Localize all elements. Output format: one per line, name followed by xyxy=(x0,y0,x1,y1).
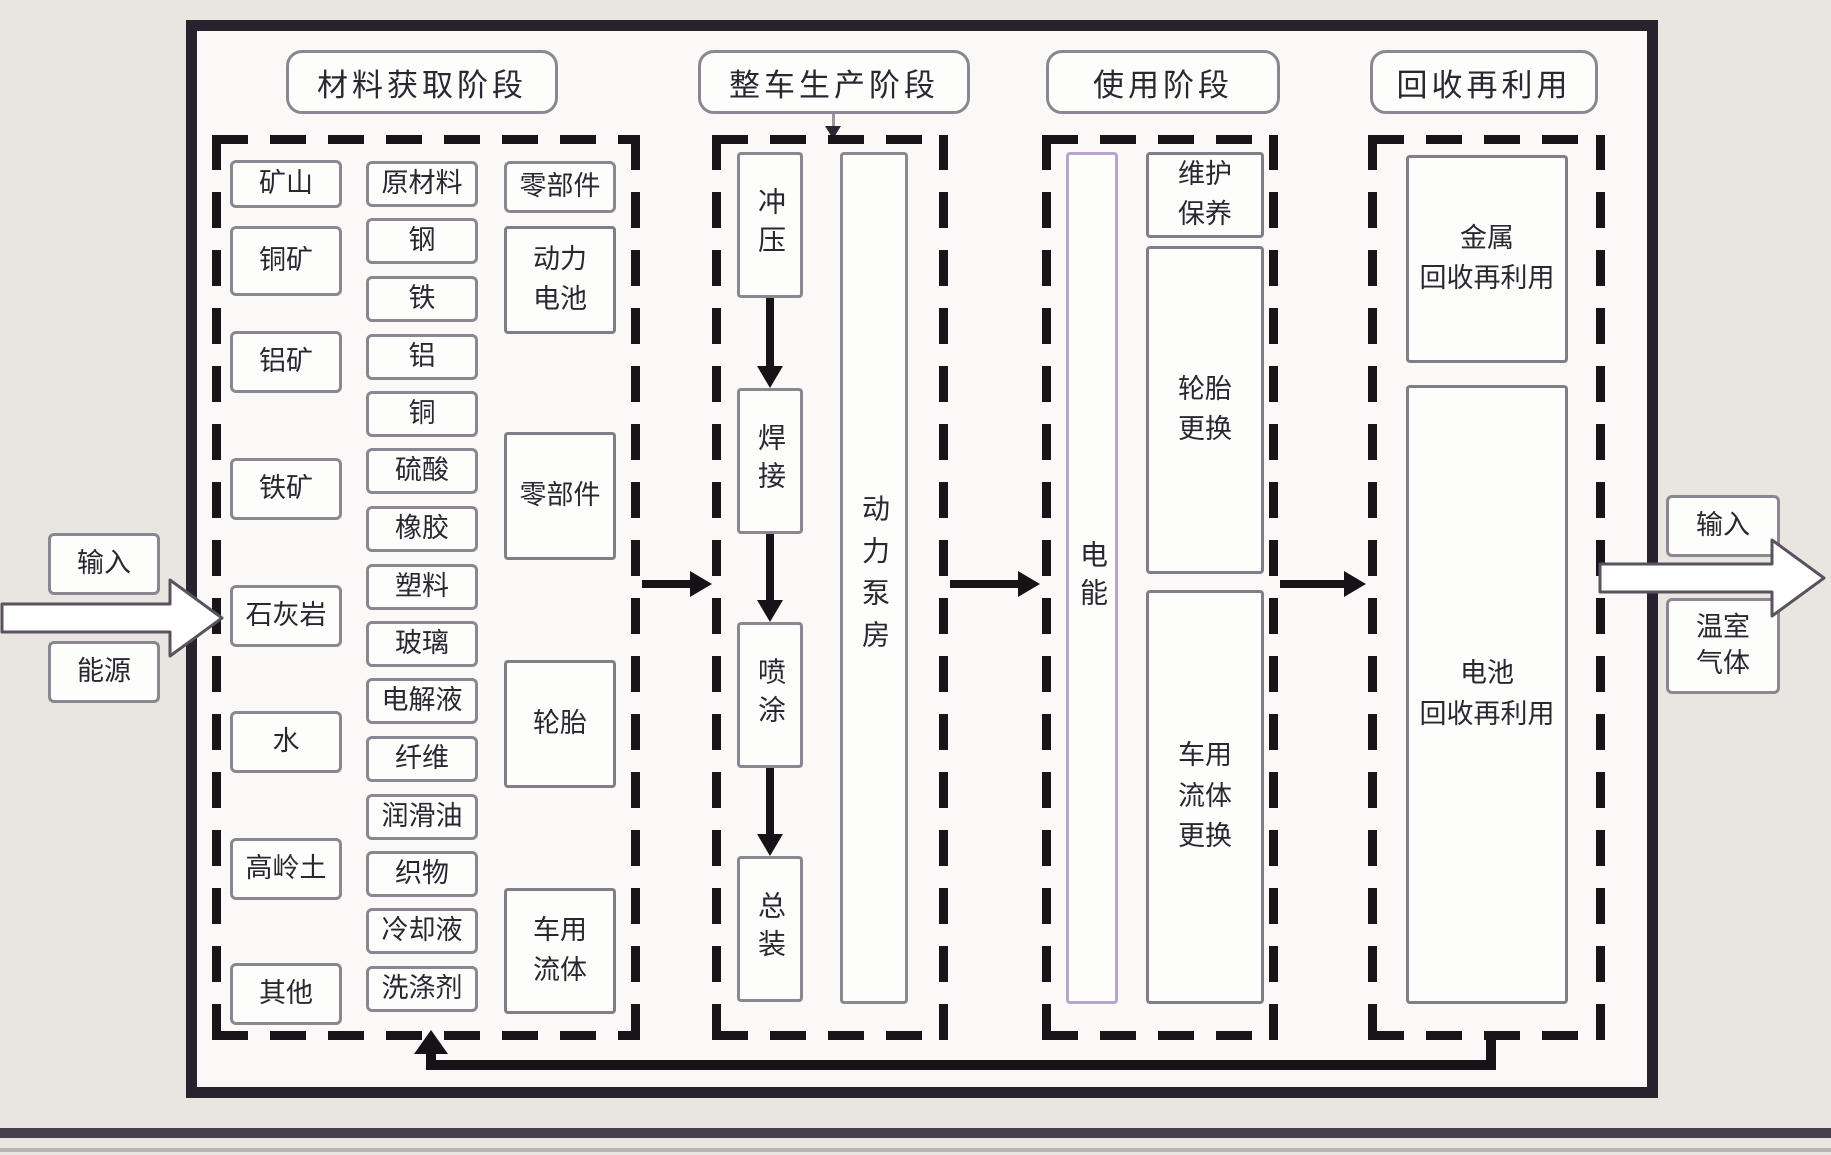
stage-title-recycling: 回收再利用 xyxy=(1370,50,1598,114)
metal-recycling-box: 金属 回收再利用 xyxy=(1406,155,1568,363)
process-arrow-icon-1 xyxy=(757,366,783,388)
stage-arrow-line-1 xyxy=(642,580,690,588)
material-iron: 铁 xyxy=(366,276,478,322)
activity-fluid-replacement: 车用 流体 更换 xyxy=(1146,590,1264,1004)
input-flow-arrow xyxy=(0,575,225,665)
power-pump-room-box: 动力泵房 xyxy=(840,152,908,1004)
material-electrolyte: 电解液 xyxy=(366,678,478,724)
electric-energy-box: 电能 xyxy=(1066,152,1118,1004)
stage-arrow-line-3 xyxy=(1280,580,1344,588)
stage-arrow-icon-1 xyxy=(690,571,712,597)
process-painting: 喷涂 xyxy=(737,622,803,768)
process-arrow-line-1 xyxy=(766,298,774,368)
source-mine: 矿山 xyxy=(230,160,342,208)
process-arrow-icon-2 xyxy=(757,600,783,622)
material-sulfuric-acid: 硫酸 xyxy=(366,448,478,494)
source-water: 水 xyxy=(230,711,342,773)
stage-arrow-icon-3 xyxy=(1344,571,1366,597)
material-steel: 钢 xyxy=(366,218,478,264)
material-fabric: 织物 xyxy=(366,851,478,897)
source-other: 其他 xyxy=(230,963,342,1025)
component-power-battery: 动力 电池 xyxy=(504,226,616,334)
component-tires: 轮胎 xyxy=(504,660,616,788)
material-coolant: 冷却液 xyxy=(366,908,478,954)
activity-maintenance: 维护 保养 xyxy=(1146,152,1264,238)
activity-tire-replacement: 轮胎 更换 xyxy=(1146,246,1264,574)
feedback-line-left xyxy=(426,1052,436,1070)
component-vehicle-fluids: 车用 流体 xyxy=(504,888,616,1014)
output-flow-arrow xyxy=(1596,536,1828,622)
stage-arrow-line-2 xyxy=(950,580,1018,588)
stage-title-production: 整车生产阶段 xyxy=(698,50,970,114)
source-limestone: 石灰岩 xyxy=(230,585,342,647)
stage-title-material: 材料获取阶段 xyxy=(286,50,558,114)
source-iron-ore: 铁矿 xyxy=(230,458,342,520)
process-welding: 焊接 xyxy=(737,388,803,534)
material-glass: 玻璃 xyxy=(366,621,478,667)
component-parts: 零部件 xyxy=(504,432,616,560)
process-final-assembly: 总装 xyxy=(737,856,803,1002)
process-stamping: 冲压 xyxy=(737,152,803,298)
process-arrow-icon-3 xyxy=(757,834,783,856)
feedback-line-bottom xyxy=(426,1060,1496,1070)
page-divider-rule-light xyxy=(0,1148,1831,1152)
feedback-arrow-icon xyxy=(414,1030,448,1054)
process-arrow-line-3 xyxy=(766,768,774,834)
material-lubricant: 润滑油 xyxy=(366,794,478,840)
source-aluminum-ore: 铝矿 xyxy=(230,331,342,393)
material-plastic: 塑料 xyxy=(366,564,478,610)
material-aluminum: 铝 xyxy=(366,334,478,380)
ev-lifecycle-diagram: 材料获取阶段 整车生产阶段 使用阶段 回收再利用 矿山 铜矿 铝矿 铁矿 石灰岩… xyxy=(0,0,1831,1155)
stage-arrow-icon-2 xyxy=(1018,571,1040,597)
material-detergent: 洗涤剂 xyxy=(366,966,478,1012)
page-divider-rule xyxy=(0,1128,1831,1138)
process-arrow-line-2 xyxy=(766,534,774,600)
material-fiber: 纤维 xyxy=(366,736,478,782)
stage-title-use: 使用阶段 xyxy=(1046,50,1280,114)
battery-recycling-box: 电池 回收再利用 xyxy=(1406,385,1568,1004)
component-header: 零部件 xyxy=(504,161,616,213)
material-raw: 原材料 xyxy=(366,161,478,207)
source-copper-ore: 铜矿 xyxy=(230,226,342,296)
material-copper: 铜 xyxy=(366,391,478,437)
source-kaolin: 高岭土 xyxy=(230,838,342,900)
material-rubber: 橡胶 xyxy=(366,506,478,552)
